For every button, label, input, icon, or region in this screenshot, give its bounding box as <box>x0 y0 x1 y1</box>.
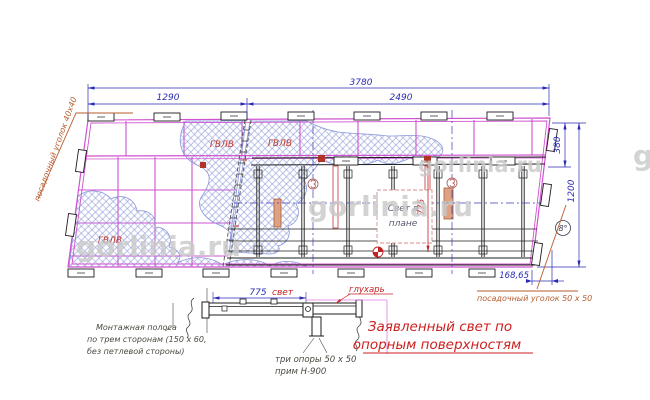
mounting-strip-note: Монтажная полоса по трем сторонам (150 х… <box>87 303 206 356</box>
dim-overall: 3780 <box>350 78 373 88</box>
dim-left-span: 1290 <box>157 93 180 103</box>
lag-screw-label: глухарь <box>349 285 385 295</box>
watermark-text: gorlinia.ru <box>308 190 473 223</box>
dim-section-light: 775 <box>249 288 266 298</box>
technical-drawing-svg: 3780 1290 2490 380 1200 168,65 8° посадо… <box>0 0 650 400</box>
break-line-left <box>186 298 194 338</box>
dim-right-span: 2490 <box>390 93 413 103</box>
angle-value: 8° <box>558 224 567 233</box>
mount-line3: без петлевой стороны) <box>87 347 184 356</box>
mount-line1: Монтажная полоса <box>96 323 177 332</box>
datum-target <box>373 247 383 257</box>
dim-height-top: 380 <box>553 136 563 153</box>
watermark-text: gorlinia.ru <box>76 230 241 263</box>
panel-label: ГВЛВ <box>210 140 234 150</box>
mount-line2: по трем сторонам (150 х 60, <box>87 335 206 344</box>
seat-angle-left-note: посадочный уголок 40х40 <box>33 96 79 203</box>
seat-angle-right-note: посадочный уголок 50 х 50 <box>477 294 592 303</box>
watermark-text: gorlinia.ru <box>633 139 650 172</box>
dim-height-full: 1200 <box>567 179 577 202</box>
supports-note: три опоры 50 х 50 прим Н-900 <box>275 338 356 377</box>
support-leg <box>312 317 321 336</box>
declared-light-note: Заявленный свет по опорным поверхностям <box>353 319 533 353</box>
declared-line1: Заявленный свет по <box>368 319 512 335</box>
declared-line2: опорным поверхностям <box>353 337 521 353</box>
dim-corner-offset: 168,65 <box>499 271 529 281</box>
supports-line2: прим Н-900 <box>275 367 326 377</box>
panel-label: ГВЛВ <box>268 139 292 149</box>
section-view: 775 свет глухарь <box>87 285 393 377</box>
dim-section-light-word: свет <box>272 288 294 298</box>
supports-line1: три опоры 50 х 50 <box>275 355 356 365</box>
watermark-text: gorlinia.ru <box>418 153 542 177</box>
cad-drawing-canvas: 3780 1290 2490 380 1200 168,65 8° посадо… <box>0 0 650 400</box>
